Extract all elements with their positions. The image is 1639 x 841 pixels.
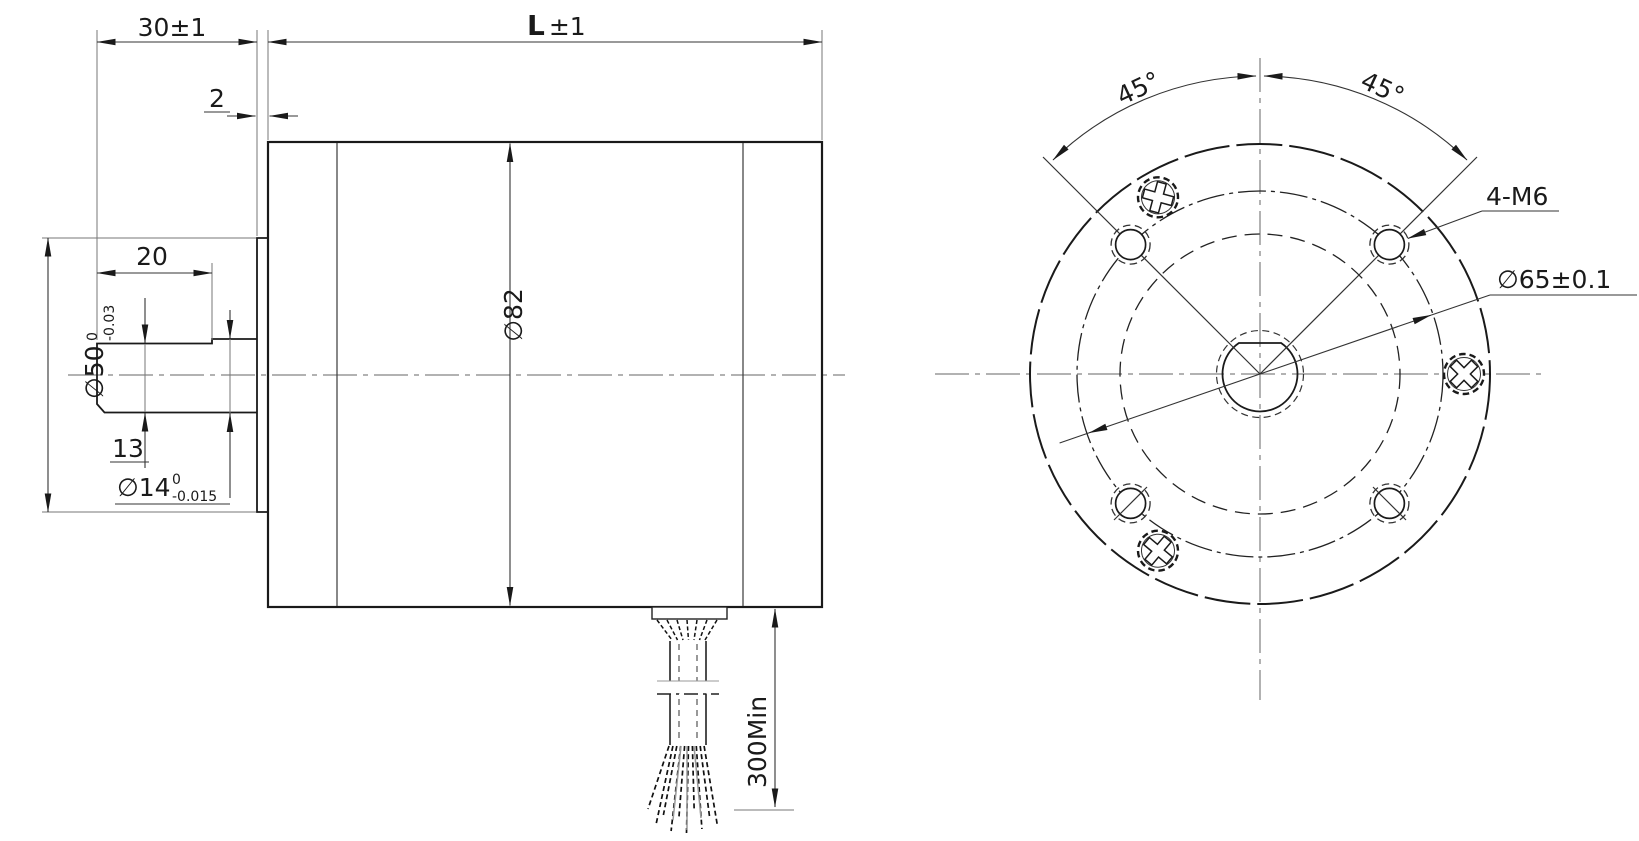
shaft-tol-lower: -0.015 [172,489,217,505]
drawing-page: 30±1 L±1 2 20 ∅82 13 ∅14 0 -0.015 [0,0,1639,841]
bolt-hole-bottom-left [1111,484,1150,523]
ext-line-45-right [1260,157,1477,374]
cable-fan-upper [657,620,717,640]
bolt-circle-label: ∅65±0.1 [1497,265,1611,294]
bolt-hole-bottom-right [1370,484,1409,523]
mount-holes-label: 4-M6 [1486,182,1548,211]
dim-cable-labelgroup: 300Min [743,696,772,788]
dim-body-length-tol: ±1 [549,12,586,41]
cable-gland [652,607,727,619]
motor-dimension-drawing: 30±1 L±1 2 20 ∅82 13 ∅14 0 -0.015 [0,0,1639,841]
dim-flat-height-label: 13 [112,434,144,463]
dim-boss-protrusion-label: 2 [209,84,225,113]
dim-angle-right-labelgroup: 45° [1356,66,1408,111]
cable-fan-lower [648,746,717,833]
cover-screw-right [1436,346,1493,403]
shaft [97,339,257,413]
dim-shaft-extension-label: 30±1 [138,13,207,42]
dim-flat-length-label: 20 [136,242,168,271]
dim-body-length-L: L [527,9,545,42]
shaft-tol-upper: 0 [172,472,181,488]
shaft-diameter-label: ∅14 [117,473,171,502]
dim-angle-left-label: 45° [1112,66,1164,111]
dim-angle-left-labelgroup: 45° [1112,66,1164,111]
cable-break-gap [656,682,720,694]
front-view: 45° 45° 4-M6 ∅65±0.1 [935,58,1637,700]
cover-screw-bottom-left [1130,523,1186,579]
bolt-circle-dim-overshoot [1060,433,1089,443]
cover-screw-top-left [1134,173,1183,222]
dim-body-od-labelgroup: ∅82 [499,288,528,342]
dim-cable-length-label: 300Min [743,696,772,788]
pilot-diameter-label: ∅50 [80,345,109,399]
dim-body-od-label: ∅82 [499,288,528,342]
side-view: 30±1 L±1 2 20 ∅82 13 ∅14 0 -0.015 [42,9,845,833]
pilot-labelgroup: ∅50 0 -0.03 [80,305,118,399]
pilot-tol-lower: -0.03 [102,305,118,341]
dim-angle-right-label: 45° [1356,66,1408,111]
pilot-tol-upper: 0 [85,332,101,341]
cable-assembly [648,607,727,833]
bolt-hole-top-left [1111,225,1150,264]
dim-body-length-label: L±1 [527,9,586,42]
